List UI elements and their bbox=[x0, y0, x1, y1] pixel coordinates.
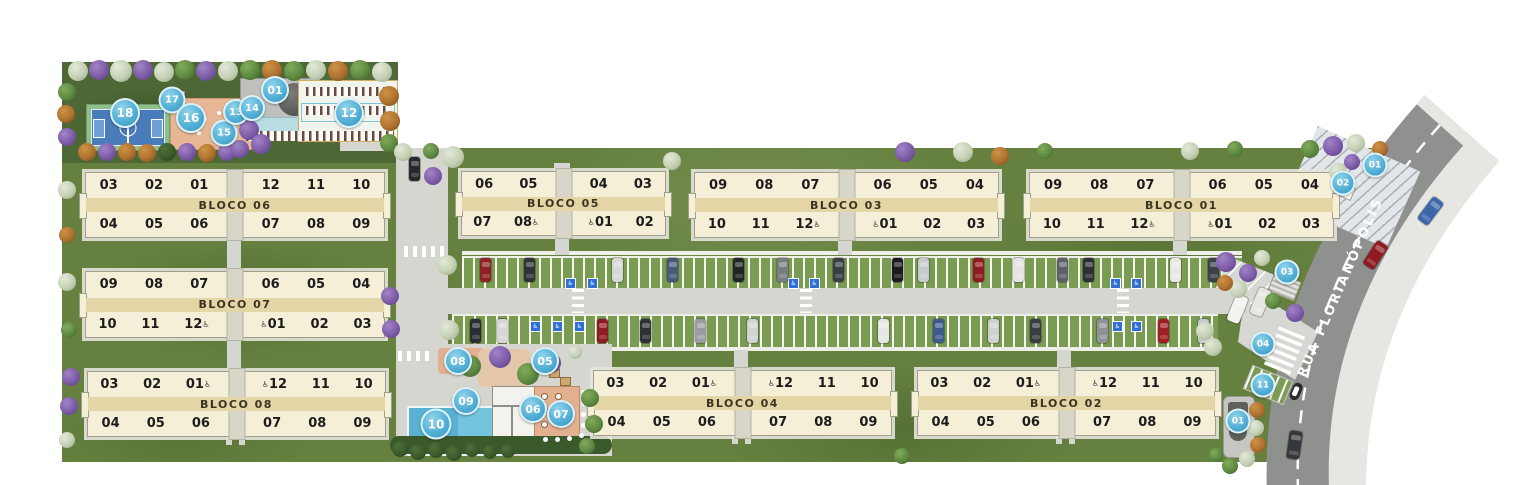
tree bbox=[1227, 141, 1243, 157]
tree bbox=[991, 147, 1009, 165]
tree bbox=[196, 61, 216, 81]
tree bbox=[1301, 140, 1319, 158]
tree bbox=[60, 397, 78, 415]
tree bbox=[380, 111, 400, 131]
parked-car bbox=[878, 319, 889, 343]
wheelchair-accessible-icon: ♿ bbox=[768, 379, 775, 388]
wheelchair-accessible-icon: ♿ bbox=[1148, 220, 1155, 229]
map-marker-14[interactable]: 14 bbox=[239, 95, 265, 121]
unit-number[interactable]: 03 bbox=[353, 317, 371, 332]
tree bbox=[489, 346, 511, 368]
unit-number[interactable]: 03 bbox=[634, 177, 652, 192]
unit-number[interactable]: 07 bbox=[1093, 415, 1111, 430]
tree bbox=[218, 61, 238, 81]
unit-number[interactable]: ♿12 bbox=[1092, 376, 1117, 391]
tree bbox=[392, 441, 408, 457]
tree bbox=[154, 62, 174, 82]
unit-number[interactable]: 08 bbox=[1138, 415, 1156, 430]
tree bbox=[953, 142, 973, 162]
unit-number[interactable]: 06 bbox=[262, 277, 280, 292]
unit-number[interactable]: 03 bbox=[100, 178, 118, 193]
tree bbox=[62, 368, 80, 386]
tree bbox=[158, 143, 176, 161]
accessible-parking-icon: ♿ bbox=[1110, 278, 1121, 289]
tree bbox=[57, 105, 75, 123]
tree bbox=[1250, 437, 1266, 453]
crosswalk bbox=[1117, 289, 1129, 313]
parked-car bbox=[470, 319, 481, 343]
tree bbox=[1222, 458, 1238, 474]
parked-car bbox=[1158, 319, 1169, 343]
parked-car bbox=[833, 258, 844, 282]
unit-number[interactable]: ♿01 bbox=[588, 215, 613, 230]
tree bbox=[379, 86, 399, 106]
unit-number[interactable]: 03 bbox=[100, 377, 118, 392]
accessible-parking-icon: ♿ bbox=[565, 278, 576, 289]
unit-number[interactable]: 09 bbox=[352, 217, 370, 232]
tree bbox=[58, 181, 76, 199]
tree bbox=[138, 144, 156, 162]
crosswalk bbox=[572, 289, 584, 313]
walkway-pad bbox=[227, 336, 241, 372]
building-bloco-07[interactable]: 090807060504BLOCO 07101112♿♿010203 bbox=[85, 271, 385, 338]
unit-number[interactable]: 11 bbox=[752, 217, 770, 232]
building-bloco-04[interactable]: 030201♿♿121110BLOCO 04040506070809 bbox=[593, 370, 892, 436]
block-label: BLOCO 02 bbox=[918, 396, 1215, 410]
unit-number[interactable]: 11 bbox=[307, 178, 325, 193]
wheelchair-accessible-icon: ♿ bbox=[202, 320, 209, 329]
tree bbox=[110, 60, 132, 82]
tree bbox=[568, 345, 582, 359]
tree bbox=[58, 83, 76, 101]
tree bbox=[68, 61, 88, 81]
tree bbox=[78, 143, 96, 161]
building-bloco-05[interactable]: 06050403BLOCO 050708♿♿0102 bbox=[461, 171, 666, 236]
building-bloco-01[interactable]: 090807060504BLOCO 01101112♿♿010203 bbox=[1029, 172, 1334, 238]
tree bbox=[372, 62, 392, 82]
unit-number[interactable]: 08♿ bbox=[514, 215, 539, 230]
unit-number[interactable]: ♿01 bbox=[1207, 217, 1232, 232]
tree bbox=[437, 255, 457, 275]
unit-number[interactable]: 09 bbox=[1044, 178, 1062, 193]
block-label: BLOCO 08 bbox=[88, 397, 385, 411]
tree bbox=[1217, 275, 1233, 291]
unit-number[interactable]: 07 bbox=[473, 215, 491, 230]
tree bbox=[1209, 448, 1223, 462]
block-label: BLOCO 05 bbox=[462, 197, 665, 211]
building-bloco-02[interactable]: 030201♿♿121110BLOCO 02040506070809 bbox=[917, 370, 1216, 436]
parked-car bbox=[667, 258, 678, 282]
accessible-parking-icon: ♿ bbox=[552, 321, 563, 332]
map-marker-02[interactable]: 02 bbox=[1331, 171, 1356, 196]
unit-number[interactable]: 10 bbox=[1043, 217, 1061, 232]
parked-car bbox=[1170, 258, 1181, 282]
tree bbox=[581, 389, 599, 407]
wheelchair-accessible-icon: ♿ bbox=[260, 320, 267, 329]
tree bbox=[328, 61, 348, 81]
tree bbox=[178, 143, 196, 161]
accessible-parking-icon: ♿ bbox=[530, 321, 541, 332]
unit-number[interactable]: 06 bbox=[698, 415, 716, 430]
garden-bed bbox=[560, 377, 571, 386]
tree bbox=[1037, 143, 1053, 159]
map-marker-10[interactable]: 10 bbox=[421, 409, 452, 440]
tree bbox=[483, 445, 497, 459]
map-marker-06[interactable]: 06 bbox=[519, 395, 547, 423]
unit-number[interactable]: 03 bbox=[930, 376, 948, 391]
garden-row bbox=[306, 87, 390, 96]
building-bloco-06[interactable]: 030201121110BLOCO 06040506070809 bbox=[85, 172, 385, 238]
tree bbox=[663, 152, 681, 170]
parked-car bbox=[1083, 258, 1094, 282]
parked-car bbox=[733, 258, 744, 282]
block-label: BLOCO 07 bbox=[86, 298, 384, 312]
parked-car bbox=[988, 319, 999, 343]
tree bbox=[579, 438, 595, 454]
building-bloco-03[interactable]: 090807060504BLOCO 03101112♿♿010203 bbox=[694, 172, 999, 238]
tree bbox=[175, 60, 195, 80]
accessible-parking-icon: ♿ bbox=[1131, 321, 1142, 332]
parked-car bbox=[695, 319, 706, 343]
tree bbox=[306, 60, 326, 80]
unit-number[interactable]: ♿01 bbox=[872, 217, 897, 232]
wheelchair-accessible-icon: ♿ bbox=[532, 218, 539, 227]
crosswalk bbox=[398, 351, 432, 361]
tree bbox=[394, 143, 412, 161]
tree bbox=[59, 227, 75, 243]
unit-number[interactable]: 02 bbox=[145, 178, 163, 193]
parked-car bbox=[933, 319, 944, 343]
unit-number[interactable]: 09 bbox=[100, 277, 118, 292]
unit-number[interactable]: 08 bbox=[814, 415, 832, 430]
tree bbox=[1204, 338, 1222, 356]
parked-car bbox=[409, 157, 420, 181]
wheelchair-accessible-icon: ♿ bbox=[710, 379, 717, 388]
tree bbox=[251, 134, 271, 154]
unit-number[interactable]: 04 bbox=[608, 415, 626, 430]
unit-number[interactable]: 05 bbox=[307, 277, 325, 292]
tree bbox=[1344, 154, 1360, 170]
parked-car bbox=[1057, 258, 1068, 282]
unit-number[interactable]: 07 bbox=[801, 178, 819, 193]
unit-number[interactable]: 12 bbox=[262, 178, 280, 193]
unit-number[interactable]: ♿01 bbox=[260, 317, 285, 332]
wheelchair-accessible-icon: ♿ bbox=[588, 218, 595, 227]
tree bbox=[1347, 134, 1365, 152]
tree bbox=[446, 445, 462, 461]
parked-car bbox=[612, 258, 623, 282]
map-marker-16[interactable]: 16 bbox=[176, 103, 206, 133]
unit-number[interactable]: 11 bbox=[312, 377, 330, 392]
tree bbox=[1254, 250, 1270, 266]
unit-number[interactable]: 07 bbox=[1136, 178, 1154, 193]
unit-number[interactable]: 07 bbox=[190, 277, 208, 292]
tree bbox=[1181, 142, 1199, 160]
tree bbox=[1249, 402, 1265, 418]
unit-number[interactable]: 04 bbox=[352, 277, 370, 292]
unit-number[interactable]: 01 bbox=[190, 178, 208, 193]
map-marker-12[interactable]: 12 bbox=[334, 98, 364, 128]
tree bbox=[585, 415, 603, 433]
unit-number[interactable]: 01♿ bbox=[1016, 376, 1041, 391]
unit-number[interactable]: 01♿ bbox=[186, 377, 211, 392]
unit-number[interactable]: 04 bbox=[1301, 178, 1319, 193]
map-marker-03[interactable]: 03 bbox=[1275, 260, 1300, 285]
tree bbox=[428, 442, 444, 458]
unit-number[interactable]: 09 bbox=[1183, 415, 1201, 430]
unit-number[interactable]: 10 bbox=[98, 317, 116, 332]
tree bbox=[1239, 451, 1255, 467]
crosswalk bbox=[800, 289, 812, 313]
parked-car bbox=[973, 258, 984, 282]
tree bbox=[58, 128, 76, 146]
unit-number[interactable]: 05 bbox=[920, 178, 938, 193]
parked-car bbox=[497, 319, 508, 343]
parked-car bbox=[1030, 319, 1041, 343]
unit-number[interactable]: 09 bbox=[859, 415, 877, 430]
unit-number[interactable]: 05 bbox=[1255, 178, 1273, 193]
block-label: BLOCO 06 bbox=[86, 198, 384, 212]
crosswalk bbox=[404, 246, 444, 257]
unit-number[interactable]: 03 bbox=[1302, 217, 1320, 232]
unit-number[interactable]: 02 bbox=[1258, 217, 1276, 232]
unit-number[interactable]: 08 bbox=[1090, 178, 1108, 193]
unit-number[interactable]: 03 bbox=[606, 376, 624, 391]
parked-car bbox=[777, 258, 788, 282]
unit-number[interactable]: 02 bbox=[143, 377, 161, 392]
accessible-parking-icon: ♿ bbox=[809, 278, 820, 289]
unit-number[interactable]: 02 bbox=[923, 217, 941, 232]
tree bbox=[439, 320, 459, 340]
unit-number[interactable]: 04 bbox=[590, 177, 608, 192]
tree bbox=[231, 140, 249, 158]
unit-number[interactable]: 05 bbox=[519, 177, 537, 192]
unit-number[interactable]: ♿12 bbox=[768, 376, 793, 391]
map-marker-11[interactable]: 11 bbox=[1251, 373, 1276, 398]
wheelchair-accessible-icon: ♿ bbox=[204, 380, 211, 389]
site-plan: RUA FLORIANÓPOLIS ♿♿♿♿♿♿♿♿♿♿♿♿0302011211… bbox=[0, 0, 1533, 485]
accessible-parking-icon: ♿ bbox=[1131, 278, 1142, 289]
tree bbox=[382, 320, 400, 338]
parked-car bbox=[597, 319, 608, 343]
unit-number[interactable]: 10 bbox=[1185, 376, 1203, 391]
map-marker-04[interactable]: 04 bbox=[1251, 332, 1276, 357]
wheelchair-accessible-icon: ♿ bbox=[262, 380, 269, 389]
unit-number[interactable]: 07 bbox=[263, 416, 281, 431]
unit-number[interactable]: 11 bbox=[1142, 376, 1160, 391]
tree bbox=[1239, 264, 1257, 282]
unit-number[interactable]: 11 bbox=[141, 317, 159, 332]
unit-number[interactable]: 06 bbox=[190, 217, 208, 232]
unit-number[interactable]: 05 bbox=[147, 416, 165, 431]
map-marker-08[interactable]: 08 bbox=[444, 347, 472, 375]
tree bbox=[381, 287, 399, 305]
building-bloco-08[interactable]: 030201♿♿121110BLOCO 08040506070809 bbox=[87, 371, 386, 437]
unit-number[interactable]: 12♿ bbox=[184, 317, 209, 332]
accessible-parking-icon: ♿ bbox=[574, 321, 585, 332]
tree bbox=[465, 443, 479, 457]
tree bbox=[423, 143, 439, 159]
unit-number[interactable]: 06 bbox=[475, 177, 493, 192]
unit-number[interactable]: 07 bbox=[769, 415, 787, 430]
parked-car bbox=[480, 258, 491, 282]
unit-number[interactable]: 01♿ bbox=[692, 376, 717, 391]
unit-number[interactable]: 04 bbox=[102, 416, 120, 431]
parked-car bbox=[747, 319, 758, 343]
tree bbox=[1265, 293, 1281, 309]
wheelchair-accessible-icon: ♿ bbox=[1207, 220, 1214, 229]
wheelchair-accessible-icon: ♿ bbox=[813, 220, 820, 229]
unit-number[interactable]: 06 bbox=[1022, 415, 1040, 430]
unit-number[interactable]: 05 bbox=[977, 415, 995, 430]
wheelchair-accessible-icon: ♿ bbox=[872, 220, 879, 229]
map-marker-01[interactable]: 01 bbox=[1363, 153, 1388, 178]
unit-number[interactable]: 09 bbox=[353, 416, 371, 431]
parked-car bbox=[524, 258, 535, 282]
parked-car bbox=[640, 319, 651, 343]
parked-car bbox=[1013, 258, 1024, 282]
unit-number[interactable]: 11 bbox=[818, 376, 836, 391]
tree bbox=[894, 448, 910, 464]
walkway-strip bbox=[462, 251, 1242, 255]
accessible-parking-icon: ♿ bbox=[1112, 321, 1123, 332]
unit-number[interactable]: 10 bbox=[355, 377, 373, 392]
tree bbox=[89, 60, 109, 80]
parking-row-north bbox=[462, 256, 1242, 292]
map-marker-01[interactable]: 01 bbox=[1226, 409, 1251, 434]
tree bbox=[284, 61, 304, 81]
unit-number[interactable]: 02 bbox=[311, 317, 329, 332]
unit-number[interactable]: 12♿ bbox=[1130, 217, 1155, 232]
parked-car bbox=[1097, 319, 1108, 343]
unit-number[interactable]: 12♿ bbox=[795, 217, 820, 232]
tree bbox=[198, 144, 216, 162]
accessible-parking-icon: ♿ bbox=[788, 278, 799, 289]
map-marker-09[interactable]: 09 bbox=[452, 387, 480, 415]
unit-number[interactable]: 10 bbox=[708, 217, 726, 232]
wheelchair-accessible-icon: ♿ bbox=[1092, 379, 1099, 388]
unit-number[interactable]: 06 bbox=[874, 178, 892, 193]
unit-number[interactable]: 04 bbox=[932, 415, 950, 430]
map-marker-07[interactable]: 07 bbox=[547, 400, 575, 428]
block-label: BLOCO 03 bbox=[695, 198, 998, 212]
parked-car bbox=[918, 258, 929, 282]
unit-number[interactable]: 09 bbox=[709, 178, 727, 193]
unit-number[interactable]: 10 bbox=[861, 376, 879, 391]
walkway-pad bbox=[227, 236, 241, 272]
tree bbox=[895, 142, 915, 162]
map-marker-01[interactable]: 01 bbox=[261, 76, 289, 104]
unit-number[interactable]: 05 bbox=[145, 217, 163, 232]
unit-number[interactable]: 04 bbox=[100, 217, 118, 232]
unit-number[interactable]: 11 bbox=[1087, 217, 1105, 232]
map-marker-05[interactable]: 05 bbox=[531, 347, 559, 375]
tree bbox=[61, 322, 77, 338]
unit-number[interactable]: 06 bbox=[192, 416, 210, 431]
unit-number[interactable]: 02 bbox=[636, 215, 654, 230]
tree bbox=[98, 143, 116, 161]
unit-number[interactable]: 03 bbox=[967, 217, 985, 232]
block-label: BLOCO 01 bbox=[1030, 198, 1333, 212]
tree bbox=[442, 146, 464, 168]
block-label: BLOCO 04 bbox=[594, 396, 891, 410]
tree bbox=[350, 60, 370, 80]
unit-number[interactable]: 02 bbox=[973, 376, 991, 391]
tree bbox=[1286, 304, 1304, 322]
tree bbox=[501, 444, 515, 458]
unit-number[interactable]: ♿12 bbox=[262, 377, 287, 392]
unit-number[interactable]: 05 bbox=[653, 415, 671, 430]
tree bbox=[133, 60, 153, 80]
map-marker-18[interactable]: 18 bbox=[110, 98, 140, 128]
unit-number[interactable]: 06 bbox=[1209, 178, 1227, 193]
tree bbox=[1323, 136, 1343, 156]
unit-number[interactable]: 04 bbox=[966, 178, 984, 193]
unit-number[interactable]: 08 bbox=[307, 217, 325, 232]
tree bbox=[1216, 252, 1236, 272]
unit-number[interactable]: 10 bbox=[352, 178, 370, 193]
tree bbox=[118, 143, 136, 161]
unit-number[interactable]: 08 bbox=[308, 416, 326, 431]
unit-number[interactable]: 08 bbox=[755, 178, 773, 193]
unit-number[interactable]: 08 bbox=[145, 277, 163, 292]
tree bbox=[58, 273, 76, 291]
tree bbox=[240, 60, 260, 80]
parked-car bbox=[892, 258, 903, 282]
unit-number[interactable]: 02 bbox=[649, 376, 667, 391]
wheelchair-accessible-icon: ♿ bbox=[1034, 379, 1041, 388]
tree bbox=[410, 444, 426, 460]
accessible-parking-icon: ♿ bbox=[587, 278, 598, 289]
tree bbox=[424, 167, 442, 185]
tree bbox=[59, 432, 75, 448]
unit-number[interactable]: 07 bbox=[262, 217, 280, 232]
